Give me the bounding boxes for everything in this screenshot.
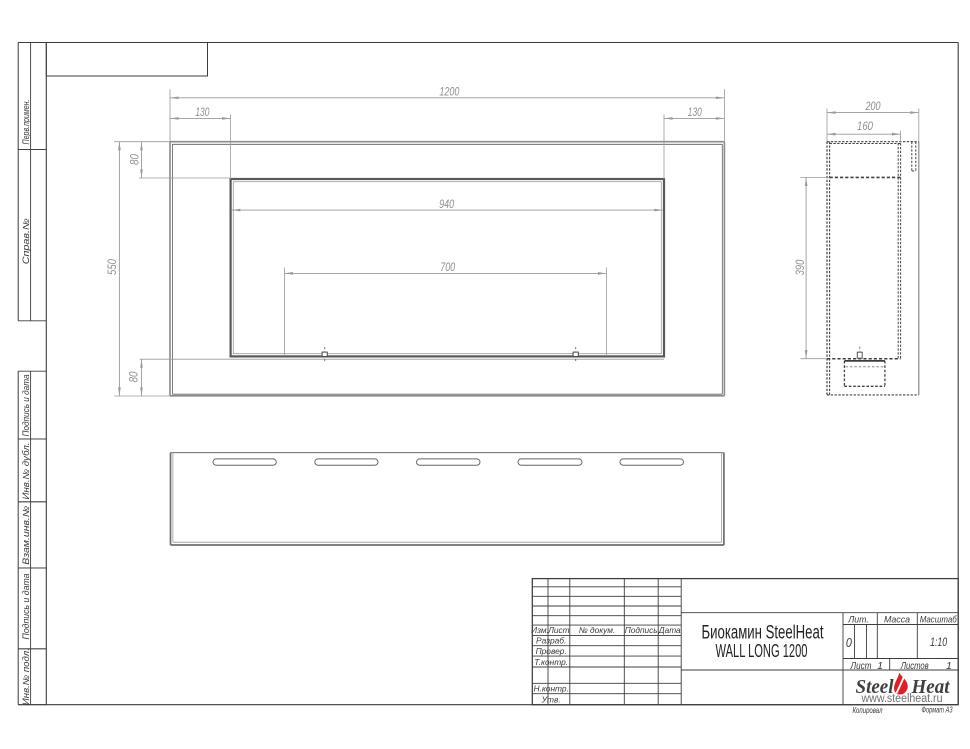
svg-text:130: 130: [195, 105, 209, 119]
svg-text:80: 80: [127, 371, 141, 382]
svg-text:1: 1: [877, 660, 883, 672]
svg-text:Дата: Дата: [658, 625, 681, 635]
svg-text:Утв.: Утв.: [541, 694, 561, 704]
svg-text:160: 160: [857, 119, 873, 133]
svg-text:550: 550: [105, 259, 119, 275]
svg-text:Справ.№: Справ.№: [21, 218, 31, 264]
svg-text:Разраб.: Разраб.: [536, 636, 566, 646]
svg-text:Н.контр.: Н.контр.: [533, 684, 568, 694]
svg-text:WALL LONG 1200: WALL LONG 1200: [716, 640, 808, 661]
svg-text:700: 700: [440, 260, 455, 274]
svg-text:Перв.примен.: Перв.примен.: [21, 100, 31, 145]
svg-text:№ докум.: № докум.: [579, 625, 616, 635]
svg-text:940: 940: [439, 197, 454, 211]
svg-text:Копировал: Копировал: [853, 706, 883, 715]
svg-text:Провер.: Провер.: [536, 646, 567, 656]
svg-text:Подпись и дата: Подпись и дата: [21, 573, 31, 639]
svg-text:Подпись: Подпись: [625, 625, 658, 635]
svg-text:130: 130: [688, 105, 702, 119]
svg-text:Взам.инв.№: Взам.инв.№: [21, 506, 31, 565]
svg-text:390: 390: [793, 260, 807, 276]
svg-text:Лист: Лист: [547, 625, 569, 635]
svg-text:Листов: Листов: [900, 661, 929, 672]
svg-text:Лист: Лист: [850, 661, 872, 672]
svg-text:80: 80: [128, 154, 142, 165]
svg-text:Т.контр.: Т.контр.: [534, 657, 568, 667]
svg-text:Изм.: Изм.: [531, 625, 549, 635]
svg-text:1: 1: [946, 660, 952, 672]
svg-text:1:10: 1:10: [930, 635, 947, 649]
svg-text:200: 200: [865, 99, 881, 113]
svg-text:Формат А3: Формат А3: [922, 706, 953, 715]
svg-text:Подпись и дата: Подпись и дата: [21, 374, 31, 436]
svg-text:Масса: Масса: [884, 614, 910, 624]
svg-text:Лит.: Лит.: [847, 614, 869, 624]
svg-text:Инв.№ подл.: Инв.№ подл.: [21, 648, 31, 705]
svg-text:www.steelheat.ru: www.steelheat.ru: [861, 693, 943, 705]
svg-text:1200: 1200: [439, 85, 459, 99]
svg-text:0: 0: [846, 636, 852, 650]
svg-text:Масштаб: Масштаб: [920, 614, 958, 624]
svg-text:Инв.№ дубл.: Инв.№ дубл.: [21, 443, 31, 500]
